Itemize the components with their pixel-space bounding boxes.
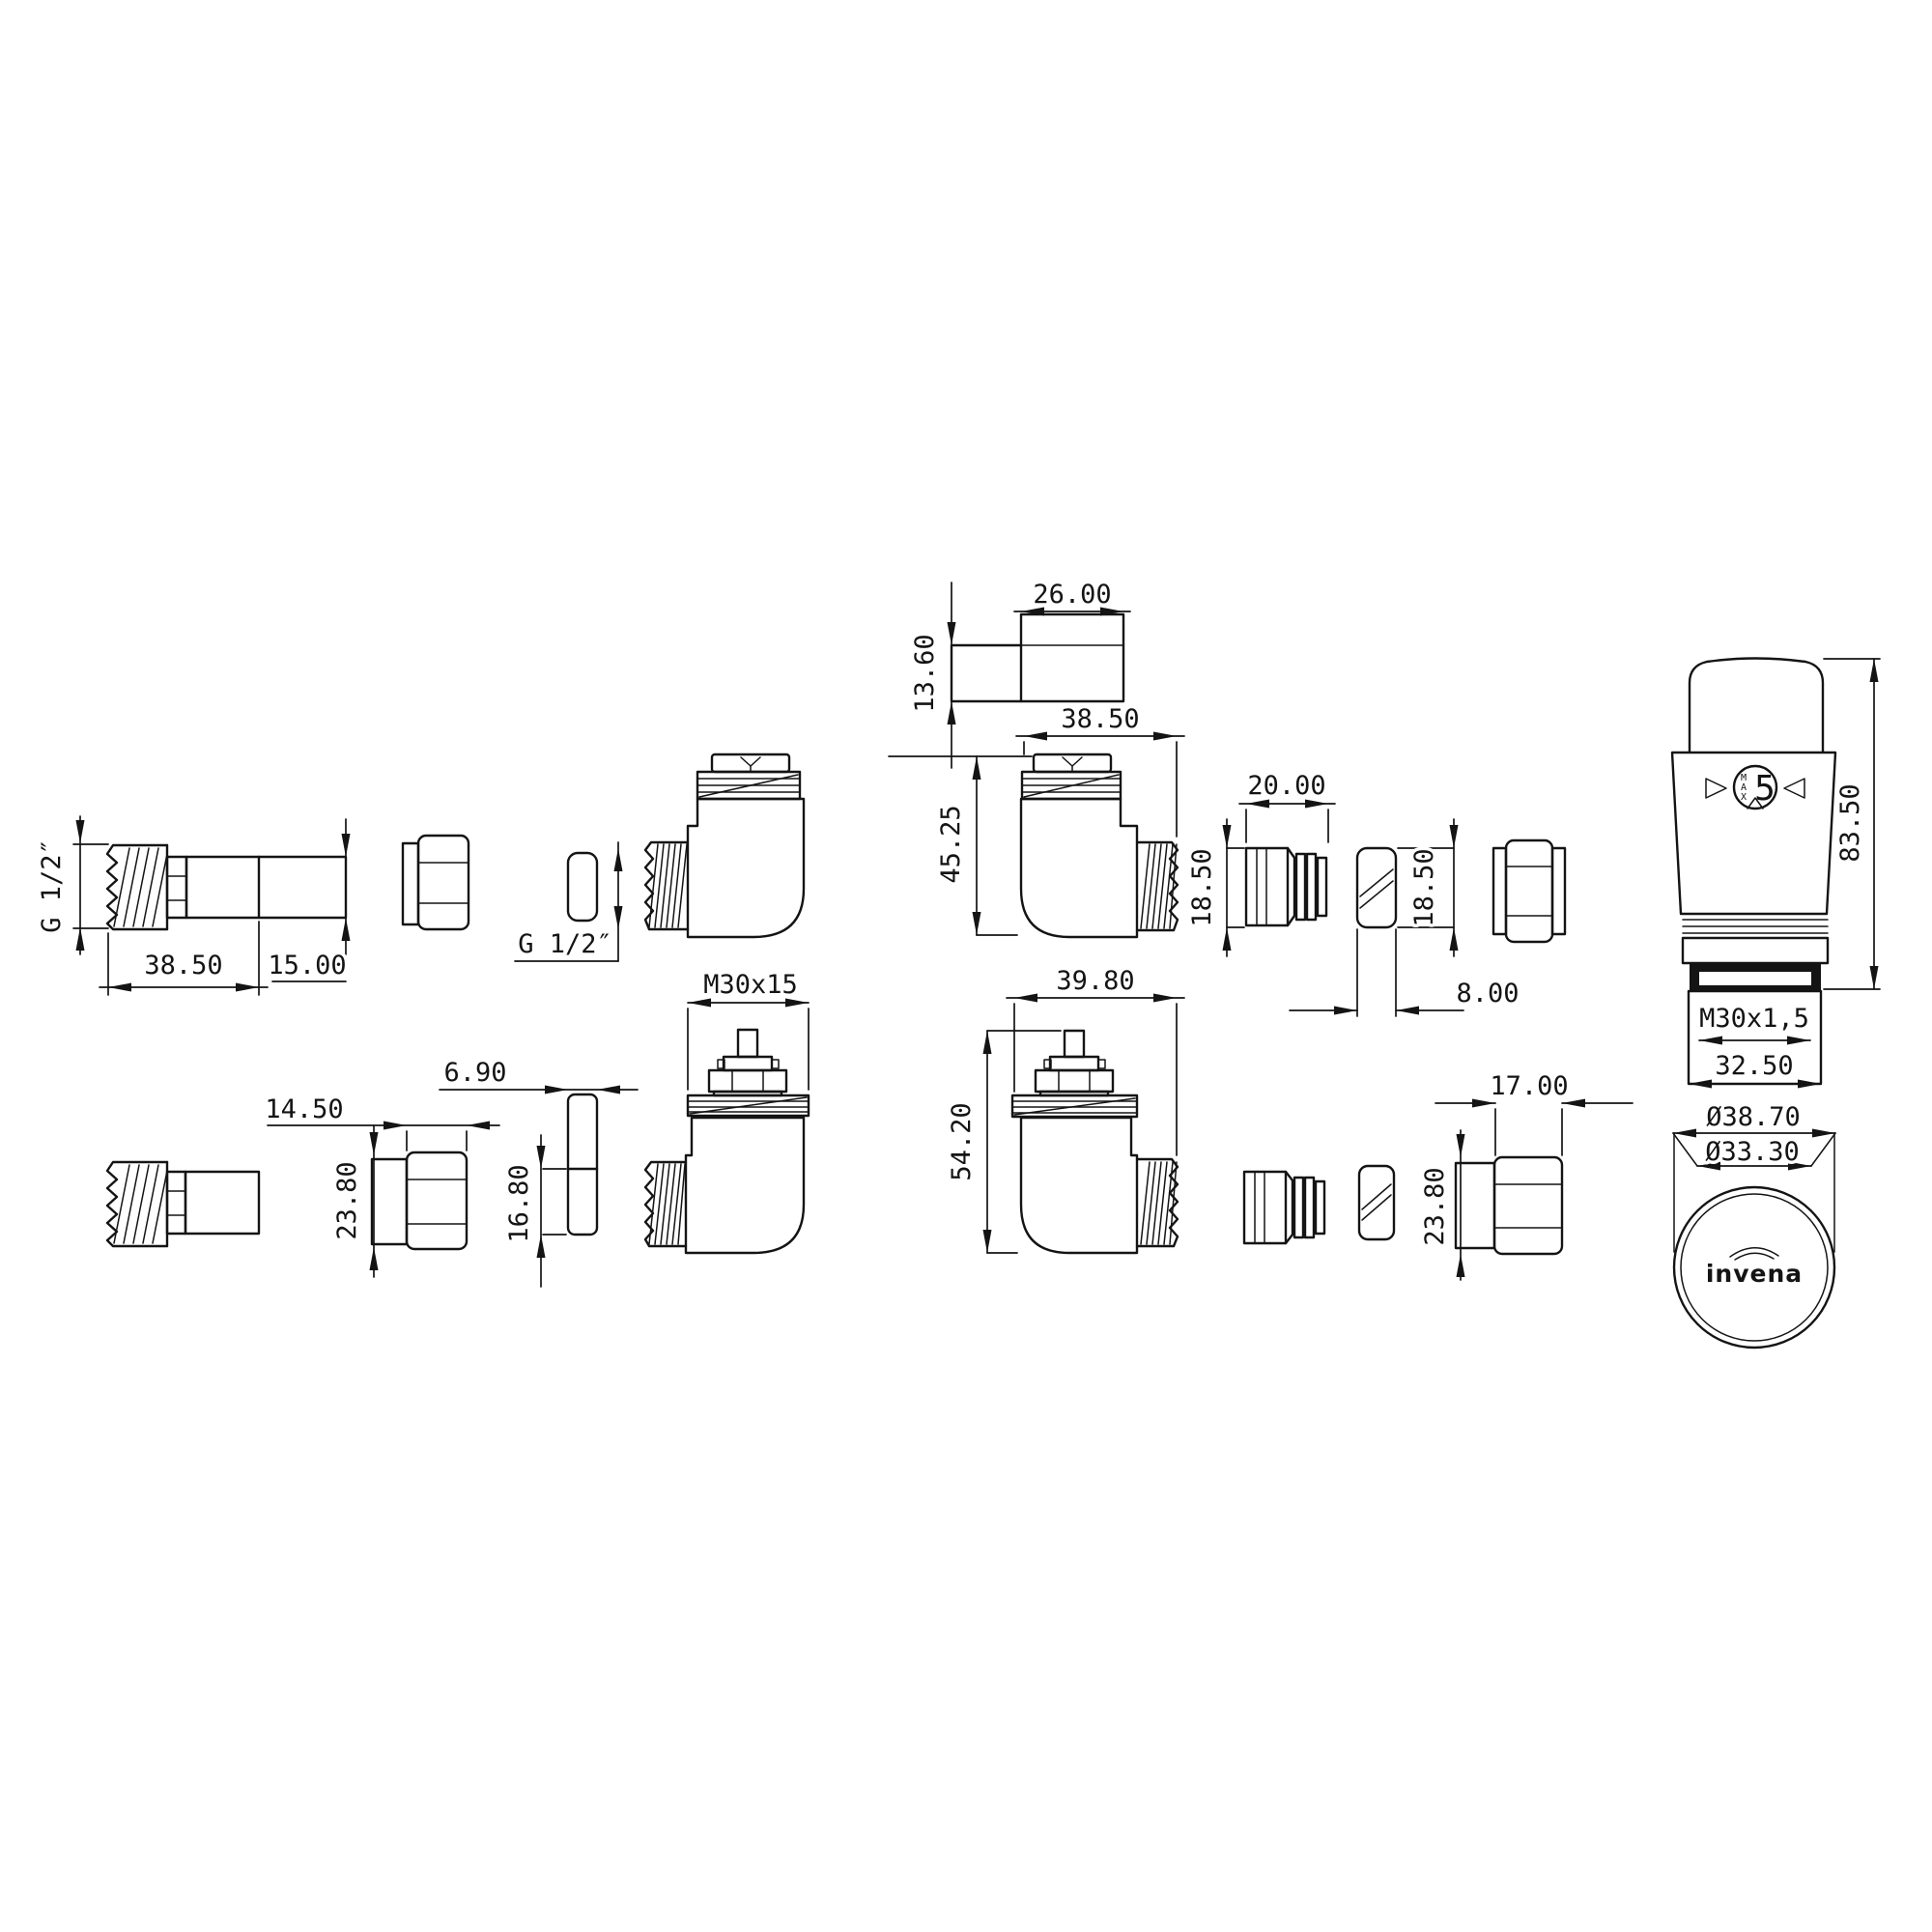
pex-insert-bottom: [1244, 1172, 1324, 1243]
dim-block-height: 13.60: [910, 582, 956, 768]
tail-fitting-bottom-view: [107, 1162, 259, 1246]
elbow-lockshield-right: [1021, 754, 1178, 937]
thread-hatch: [114, 848, 167, 926]
dim-tail-length: 38.50: [99, 922, 268, 995]
dim-label-23-80-right: 23.80: [1420, 1167, 1450, 1245]
dim-label-83-50: 83.50: [1835, 783, 1865, 862]
spacer-pin-bottom-left: [568, 1094, 597, 1235]
compression-nut-top-right: [1493, 840, 1565, 942]
dim-valve-top-height: 45.25: [889, 756, 1032, 935]
dim-ring-width: 8.00: [1290, 929, 1520, 1016]
dim-insert-height: 18.50: [1187, 819, 1244, 956]
dim-label-26-00: 26.00: [1033, 580, 1111, 610]
dim-label-20-00: 20.00: [1247, 771, 1325, 801]
compression-nut-top-left: [403, 836, 469, 929]
dim-head-thread: M30x1,5: [1699, 1004, 1810, 1045]
dim-tail-thread: G 1/2″: [37, 816, 108, 954]
dim-pin-width: 6.90: [440, 1058, 638, 1094]
dim-label-6-90: 6.90: [443, 1058, 506, 1088]
dim-label-inner-dia: Ø33.30: [1705, 1137, 1800, 1167]
dim-valve-bottom-width: 39.80: [1007, 966, 1184, 1155]
dim-nut-right-depth: 17.00: [1435, 1071, 1633, 1155]
thread-hatch: [114, 1165, 167, 1243]
dim-ring-height: 18.50: [1398, 819, 1459, 956]
split-ring-bottom: [1359, 1166, 1394, 1239]
elbow-thermostatic-left: [645, 1030, 809, 1253]
depth-gauge-block: [952, 614, 1123, 701]
dim-label-45-25: 45.25: [936, 805, 966, 883]
pex-insert-top: [1246, 848, 1326, 925]
dim-nut-right-od: 23.80: [1420, 1130, 1465, 1280]
dial-setting: 5: [1754, 769, 1776, 809]
thread-hatch: [649, 844, 687, 927]
dim-tail-outlet: 15.00: [268, 819, 350, 981]
dim-label-m30x1-5: M30x1,5: [1699, 1004, 1809, 1034]
elbow-lockshield-left: [645, 754, 804, 937]
dim-valve-top-width: 38.50: [1016, 704, 1184, 837]
thread-hatch: [1141, 1162, 1177, 1244]
elbow-thermostatic-right: [1012, 1031, 1178, 1253]
dim-head-width: 32.50: [1689, 1051, 1821, 1089]
dim-label-14-50: 14.50: [265, 1094, 343, 1124]
thermostatic-head-bottom-view: Ø38.70 Ø33.30 invena: [1673, 1102, 1835, 1348]
compression-nut-bottom-left: [372, 1152, 467, 1249]
dim-label-g12-elbow: G 1/2″: [518, 929, 612, 959]
dim-nut-left-depth: 14.50: [265, 1094, 499, 1151]
dim-block-width: 26.00: [1014, 580, 1130, 616]
dial-max-x: X: [1741, 792, 1747, 803]
brand-logo: invena: [1706, 1260, 1803, 1288]
dim-label-8-00: 8.00: [1456, 979, 1519, 1009]
dim-label-18-50-a: 18.50: [1187, 848, 1217, 926]
dim-label-38-50-left: 38.50: [144, 951, 222, 980]
dim-label-32-50: 32.50: [1715, 1051, 1793, 1081]
dim-label-23-80-left: 23.80: [332, 1161, 362, 1239]
dim-insert-width: 20.00: [1239, 771, 1335, 842]
thread-hatch: [649, 1164, 685, 1244]
dim-pin-height: 16.80: [504, 1135, 566, 1287]
dim-label-17-00: 17.00: [1490, 1071, 1568, 1101]
tail-fitting-top-view: [107, 845, 346, 929]
dim-label-39-80: 39.80: [1056, 966, 1134, 996]
thread-hatch: [1141, 844, 1177, 928]
dim-label-15-00: 15.00: [268, 951, 346, 980]
dim-label-54-20: 54.20: [947, 1102, 977, 1180]
drawing-canvas: G 1/2″ 38.50 15.00: [0, 0, 1932, 1932]
dim-label-outer-dia: Ø38.70: [1706, 1102, 1801, 1132]
dim-label-38-50-mid: 38.50: [1061, 704, 1139, 734]
dim-label-16-80: 16.80: [504, 1164, 534, 1242]
dim-label-18-50-b: 18.50: [1409, 848, 1439, 926]
split-ring-top: [1357, 848, 1396, 927]
dim-label-m30x15: M30x15: [703, 970, 798, 1000]
olive-pin-top-left: [568, 853, 597, 921]
compression-nut-bottom-right: [1456, 1157, 1562, 1254]
dim-label-13-60: 13.60: [910, 634, 940, 712]
dim-label-g12-tail: G 1/2″: [37, 838, 67, 933]
